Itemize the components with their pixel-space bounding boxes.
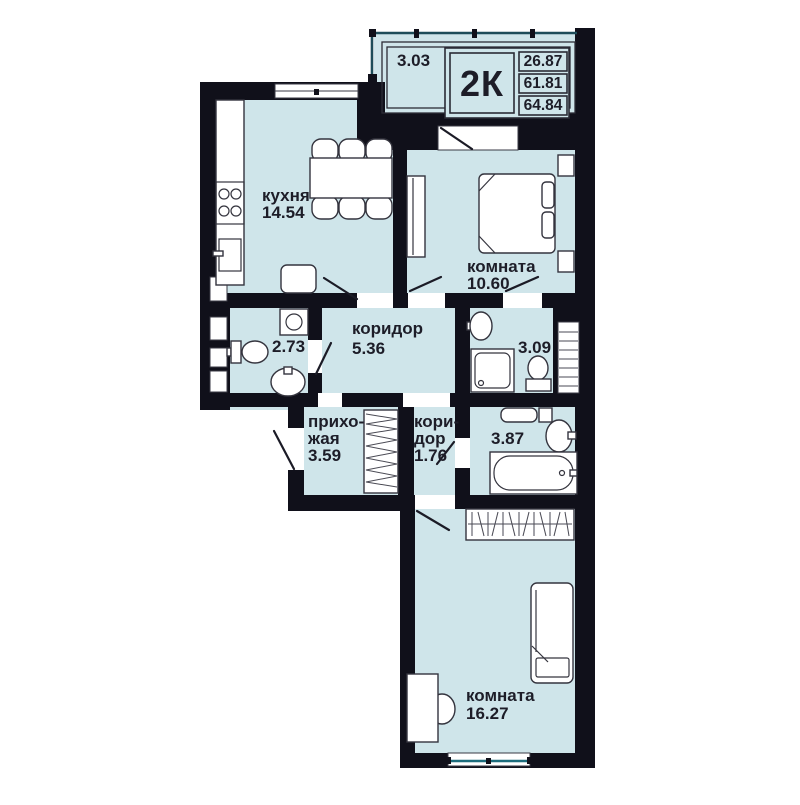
- toilet-bowl-2: [528, 356, 548, 380]
- opening-bath-door: [455, 438, 470, 468]
- chair: [312, 196, 338, 219]
- bedroom2-window-tick-left: [446, 757, 451, 764]
- dining-table: [310, 158, 392, 198]
- shaft-box-4: [210, 371, 227, 392]
- wall-hallway-corridor2: [398, 407, 414, 495]
- opening-bedroom-entry: [408, 293, 445, 308]
- toilet-base-2: [526, 379, 551, 391]
- corridor-area-label: 5.36: [352, 339, 385, 358]
- wall-waist: [200, 393, 595, 407]
- shaft-box-2: [210, 317, 227, 340]
- washing-machine: [280, 309, 308, 335]
- bath-cabinet: [539, 408, 552, 422]
- wc-sink-faucet: [284, 367, 292, 374]
- kitchen-faucet: [213, 251, 223, 256]
- bedroom2-name-label: комната: [466, 686, 535, 705]
- shower-cabin: [471, 349, 514, 392]
- bedroom2-window-tick-right: [527, 757, 532, 764]
- desk: [407, 674, 438, 742]
- fridge: [281, 265, 316, 293]
- nightstand: [558, 155, 574, 176]
- bathtub-faucet: [570, 470, 577, 476]
- shower-room-sink: [470, 312, 492, 340]
- area-living-value: 61.81: [524, 75, 563, 92]
- opening-bedroom-shower: [503, 293, 542, 308]
- bathroom-sink-faucet: [568, 432, 576, 439]
- balcony-door-window: [438, 126, 518, 150]
- pillow: [542, 212, 554, 238]
- wc-area-label: 2.73: [272, 337, 305, 356]
- kitchen-area-label: 14.54: [262, 203, 305, 222]
- bath-shelf: [501, 408, 537, 422]
- bedroom2-window-tick-mid: [486, 758, 491, 764]
- opening-corridor-corridor2: [403, 393, 450, 407]
- shaft-right: [558, 322, 579, 393]
- bathroom-area-label: 3.87: [491, 429, 524, 448]
- area-rooms-value: 26.87: [524, 53, 563, 70]
- bedroom-area-label: 10.60: [467, 274, 510, 293]
- opening-bedroom2-door: [415, 495, 455, 509]
- nightstand: [558, 251, 574, 272]
- floorplan-drawing: 2К 26.87 61.81 64.84 3.03 кухня 14.54 ко…: [0, 0, 800, 800]
- shower-room-area-label: 3.09: [518, 338, 551, 357]
- hallway-wardrobe: [364, 410, 398, 493]
- wall-corridor-shower: [455, 293, 470, 410]
- opening-corridor-hallway: [318, 393, 342, 407]
- opening-kitchen-corridor: [357, 293, 393, 308]
- chair: [366, 196, 392, 219]
- corridor2-area-label: 1.76: [414, 446, 447, 465]
- hallway-area-label: 3.59: [308, 446, 341, 465]
- balcony-area-label: 3.03: [397, 51, 430, 70]
- unit-type-label: 2К: [460, 63, 504, 104]
- wall-bath-bottom: [455, 495, 595, 509]
- bedroom-wardrobe: [407, 176, 425, 257]
- floorplan-page: 2К 26.87 61.81 64.84 3.03 кухня 14.54 ко…: [0, 0, 800, 800]
- shaft-box-3: [210, 348, 227, 367]
- bedroom2-area-label: 16.27: [466, 704, 509, 723]
- unit-info-box: 2К 26.87 61.81 64.84: [445, 48, 569, 118]
- toilet-tank: [231, 341, 241, 363]
- toilet-bowl: [242, 341, 268, 363]
- area-total-value: 64.84: [524, 97, 563, 114]
- wall-hallway-bottom: [288, 495, 415, 511]
- pillow: [542, 182, 554, 208]
- kitchen-counter: [216, 100, 244, 285]
- chair: [339, 196, 365, 219]
- single-bed: [531, 583, 573, 683]
- corridor-name-label: коридор: [352, 319, 423, 338]
- kitchen-window-tick: [314, 89, 319, 95]
